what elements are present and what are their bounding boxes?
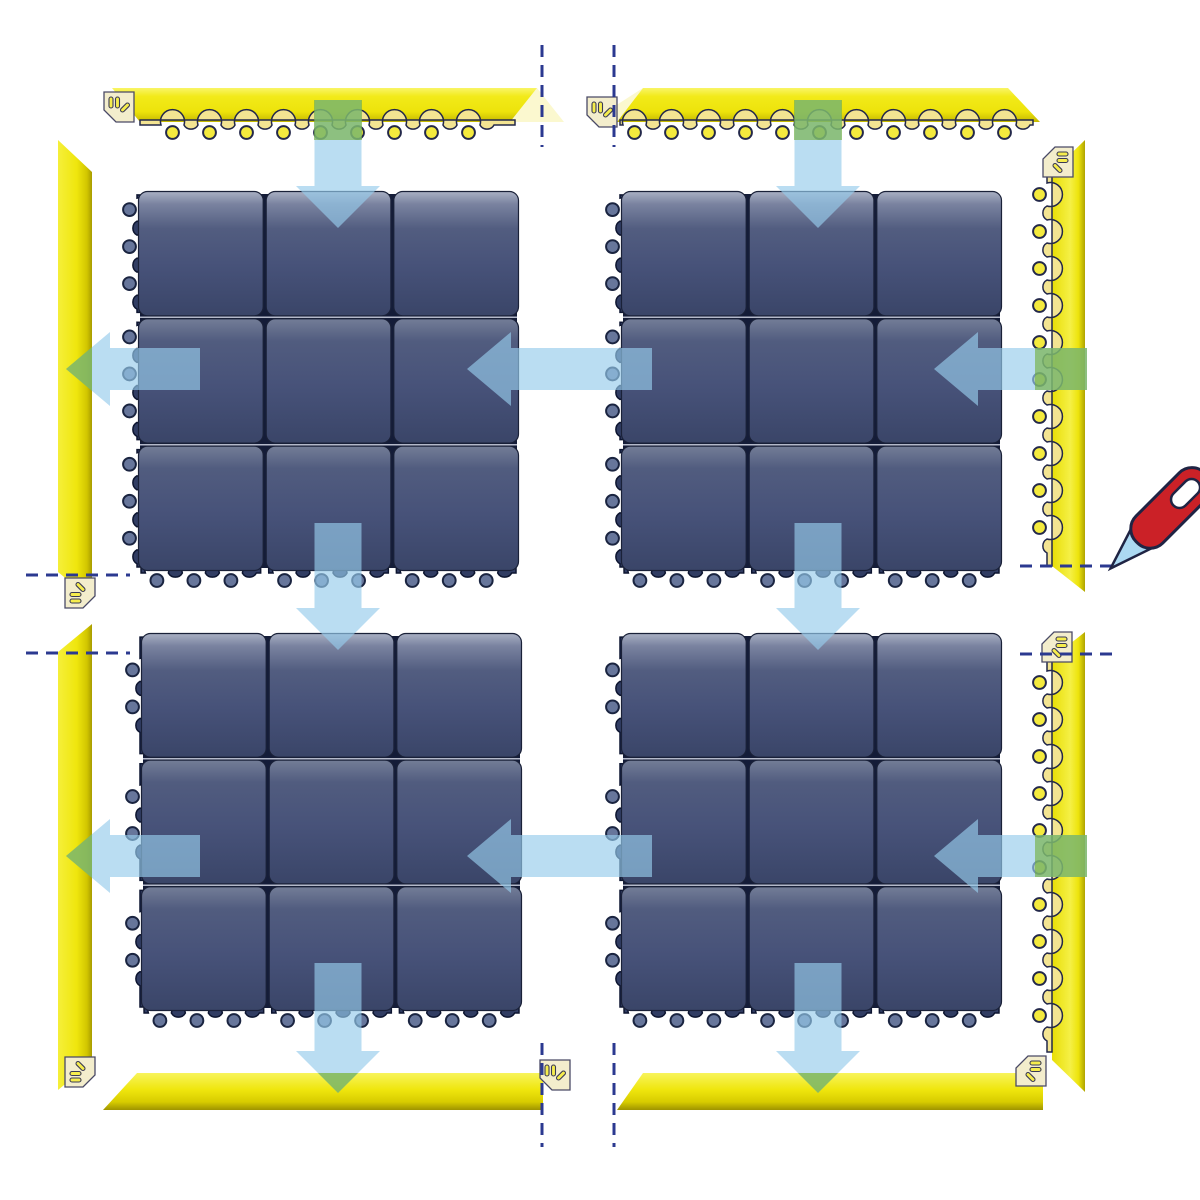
mat-bottom-left-bottom-edge-connector-hole — [281, 1014, 294, 1027]
mat-top-left-tile-r1c3 — [394, 192, 519, 316]
mat-bottom-left-bottom-edge-connector-hole — [483, 1014, 496, 1027]
ramp-top-left-scallop-edge-connector-hole — [388, 126, 401, 139]
ramp-right-lower-scallop-edge-connector-hole — [1033, 898, 1046, 911]
ramp-top-right-scallop-edge-connector-hole — [665, 126, 678, 139]
mat-top-right-left-edge-connector-hole — [606, 277, 619, 290]
mat-top-right-left-edge-connector-hole — [606, 405, 619, 418]
mat-bottom-right-bottom-edge-connector-hole — [926, 1014, 939, 1027]
mat-bottom-left-left-edge-connector-hole — [126, 790, 139, 803]
ramp-top-right-scallop-edge-connector-hole — [998, 126, 1011, 139]
ramp-right-lower-scallop-edge-connector-hole — [1033, 1009, 1046, 1022]
mat-bottom-left-bottom-edge-connector-hole — [191, 1014, 204, 1027]
mat-top-right-bottom-edge-connector-hole — [761, 574, 774, 587]
knife-handle — [1123, 460, 1200, 555]
mat-top-left-tile-r1c1 — [139, 192, 264, 316]
mat-bottom-right-bottom-edge-connector-hole — [761, 1014, 774, 1027]
mat-top-right-tile-r2c2 — [749, 319, 874, 443]
mat-top-right-bottom-edge-connector-hole — [889, 574, 902, 587]
mat-assembly-diagram — [0, 0, 1200, 1200]
mat-bottom-right-tile-r2c2 — [749, 760, 874, 884]
diagram-svg — [0, 0, 1200, 1200]
mat-top-right-tile-r1c1 — [622, 192, 747, 316]
mat-bottom-right-bottom-edge-connector-hole — [889, 1014, 902, 1027]
ramp-right-upper-scallop-edge-connector-hole — [1033, 521, 1046, 534]
mat-top-left-left-edge-connector-hole — [123, 203, 136, 216]
mat-bottom-right-bottom-edge-connector-hole — [634, 1014, 647, 1027]
mat-top-left-left-edge-connector-hole — [123, 240, 136, 253]
ramp-top-right-scallop-edge-connector-hole — [887, 126, 900, 139]
mat-bottom-left-tile-r1c3 — [397, 634, 522, 758]
mat-bottom-right-bottom-edge-connector-hole — [671, 1014, 684, 1027]
ramp-right-upper-scallop-edge-connector-hole — [1033, 299, 1046, 312]
mat-top-left-left-edge-connector-hole — [123, 532, 136, 545]
mat-bottom-left-bottom-edge-connector-hole — [154, 1014, 167, 1027]
ramp-top-right-scallop-edge-connector-hole — [776, 126, 789, 139]
mat-bottom-right-tile-r1c3 — [877, 634, 1002, 758]
utility-knife-icon — [1097, 460, 1200, 582]
corner-connector-5 — [1042, 632, 1072, 662]
mat-bottom-right-bottom-edge-connector-hole — [708, 1014, 721, 1027]
mat-bottom-left-tile-r3c1 — [142, 887, 267, 1011]
mat-top-left-left-edge-connector-hole — [123, 405, 136, 418]
ramp-right-upper-scallop-edge-connector-hole — [1033, 447, 1046, 460]
ramp-right-lower-scallop-edge-connector-hole — [1033, 713, 1046, 726]
ramp-top-right-scallop-edge-connector-hole — [924, 126, 937, 139]
ramp-top-left-scallop-edge-connector-hole — [462, 126, 475, 139]
arrow-ramp-overlap-1 — [314, 100, 362, 140]
ramp-right-lower-scallop-edge-connector-hole — [1033, 972, 1046, 985]
mat-top-left-tile-r3c1 — [139, 446, 264, 570]
ramp-top-left-scallop-edge-connector-hole — [166, 126, 179, 139]
mat-top-right-bottom-edge-connector-hole — [963, 574, 976, 587]
mat-top-left-bottom-edge-connector-hole — [225, 574, 238, 587]
mat-bottom-left-left-edge-connector-hole — [126, 701, 139, 714]
mat-top-left-bottom-edge-connector-hole — [151, 574, 164, 587]
mat-bottom-right-tile-r3c1 — [622, 887, 747, 1011]
mat-bottom-left-bottom-edge-connector-hole — [409, 1014, 422, 1027]
mat-top-left-left-edge-connector-hole — [123, 277, 136, 290]
mat-bottom-right-tile-r1c1 — [622, 634, 747, 758]
mat-bottom-right-left-edge-connector-hole — [606, 790, 619, 803]
ramp-right-lower-scallop-edge-connector-hole — [1033, 787, 1046, 800]
mat-bottom-left-tile-r1c1 — [142, 634, 267, 758]
mat-top-left-bottom-edge-connector-hole — [406, 574, 419, 587]
corner-connector-4 — [65, 578, 95, 608]
ramp-right-upper-scallop-edge-connector-hole — [1033, 262, 1046, 275]
mat-top-left-bottom-edge-connector-hole — [278, 574, 291, 587]
mat-top-right-bottom-edge-connector-hole — [708, 574, 721, 587]
ramp-top-left-scallop-edge-connector-hole — [240, 126, 253, 139]
ramp-bottom-left — [103, 1073, 543, 1110]
mat-top-right-bottom-edge-connector-hole — [634, 574, 647, 587]
ramp-top-right-scallop-edge-connector-hole — [628, 126, 641, 139]
mat-top-left-bottom-edge-connector-hole — [188, 574, 201, 587]
arrow-ramp-overlap-2 — [794, 100, 842, 140]
ramp-right-lower-scallop-edge-connector-hole — [1033, 824, 1046, 837]
mat-bottom-right-tile-r3c3 — [877, 887, 1002, 1011]
mat-top-right-left-edge-connector-hole — [606, 495, 619, 508]
ramp-right-upper-scallop-edge-connector-hole — [1033, 336, 1046, 349]
mat-top-right-left-edge-connector-hole — [606, 458, 619, 471]
ramp-right-upper-scallop-edge-connector-hole — [1033, 484, 1046, 497]
mat-top-left-tile-r2c2 — [266, 319, 391, 443]
ramp-bottom-left-face — [103, 1073, 543, 1110]
mat-bottom-right-tile-r1c2 — [749, 634, 874, 758]
arrow-ramp-overlap-8 — [1035, 835, 1087, 877]
mat-bottom-left-tile-r1c2 — [269, 634, 394, 758]
mat-bottom-left-left-edge-connector-hole — [126, 954, 139, 967]
corner-connector-3 — [1043, 147, 1073, 177]
mat-bottom-right-left-edge-connector-hole — [606, 954, 619, 967]
mat-top-right-tile-r3c1 — [622, 446, 747, 570]
ramp-right-lower-scallop-edge-connector-hole — [1033, 676, 1046, 689]
ramp-right-upper-scallop-edge-connector-hole — [1033, 410, 1046, 423]
mat-bottom-left-tile-r3c3 — [397, 887, 522, 1011]
corner-connector-6 — [540, 1060, 570, 1090]
arrow-ramp-overlap-7 — [1035, 348, 1087, 390]
mat-top-right-left-edge-connector-hole — [606, 240, 619, 253]
mat-top-left-bottom-edge-connector-hole — [443, 574, 456, 587]
mat-top-right-bottom-edge-connector-hole — [926, 574, 939, 587]
mat-top-left-bottom-edge-connector-hole — [480, 574, 493, 587]
mat-bottom-right-left-edge-connector-hole — [606, 664, 619, 677]
ramp-top-left-scallop-edge-connector-hole — [425, 126, 438, 139]
mat-bottom-right-left-edge-connector-hole — [606, 917, 619, 930]
mat-top-left-tile-r3c3 — [394, 446, 519, 570]
mat-top-left-left-edge-connector-hole — [123, 331, 136, 344]
ramp-top-right-scallop-edge-connector-hole — [961, 126, 974, 139]
corner-connector-8 — [1016, 1056, 1046, 1086]
ramp-top-left-scallop-edge-connector-hole — [203, 126, 216, 139]
ramp-top-left-scallop-edge-connector-hole — [277, 126, 290, 139]
corner-connector-7 — [65, 1057, 95, 1087]
mat-bottom-right-bottom-edge-connector-hole — [963, 1014, 976, 1027]
ramp-right-lower-scallop-edge-connector-hole — [1033, 750, 1046, 763]
ramp-top-right-scallop-edge-connector-hole — [739, 126, 752, 139]
mat-top-right-bottom-edge-connector-hole — [671, 574, 684, 587]
mat-top-right-left-edge-connector-hole — [606, 331, 619, 344]
mat-top-right-left-edge-connector-hole — [606, 203, 619, 216]
ramp-right-upper-scallop-edge-connector-hole — [1033, 188, 1046, 201]
mat-bottom-left-left-edge-connector-hole — [126, 917, 139, 930]
mat-bottom-left-bottom-edge-connector-hole — [446, 1014, 459, 1027]
ramp-right-upper-scallop-edge-connector-hole — [1033, 225, 1046, 238]
ramp-top-right-scallop-edge-connector-hole — [850, 126, 863, 139]
mat-top-left-left-edge-connector-hole — [123, 495, 136, 508]
mat-top-right-left-edge-connector-hole — [606, 532, 619, 545]
mat-bottom-left-left-edge-connector-hole — [126, 664, 139, 677]
mat-bottom-left-bottom-edge-connector-hole — [228, 1014, 241, 1027]
ramp-right-lower-scallop-edge-connector-hole — [1033, 935, 1046, 948]
corner-connector-1 — [104, 92, 134, 122]
mat-top-left-left-edge-connector-hole — [123, 458, 136, 471]
ramp-top-right-scallop-edge-connector-hole — [702, 126, 715, 139]
mat-top-right-tile-r3c3 — [877, 446, 1002, 570]
mat-bottom-left-tile-r2c2 — [269, 760, 394, 884]
mat-top-right-tile-r1c3 — [877, 192, 1002, 316]
mat-bottom-right-left-edge-connector-hole — [606, 701, 619, 714]
